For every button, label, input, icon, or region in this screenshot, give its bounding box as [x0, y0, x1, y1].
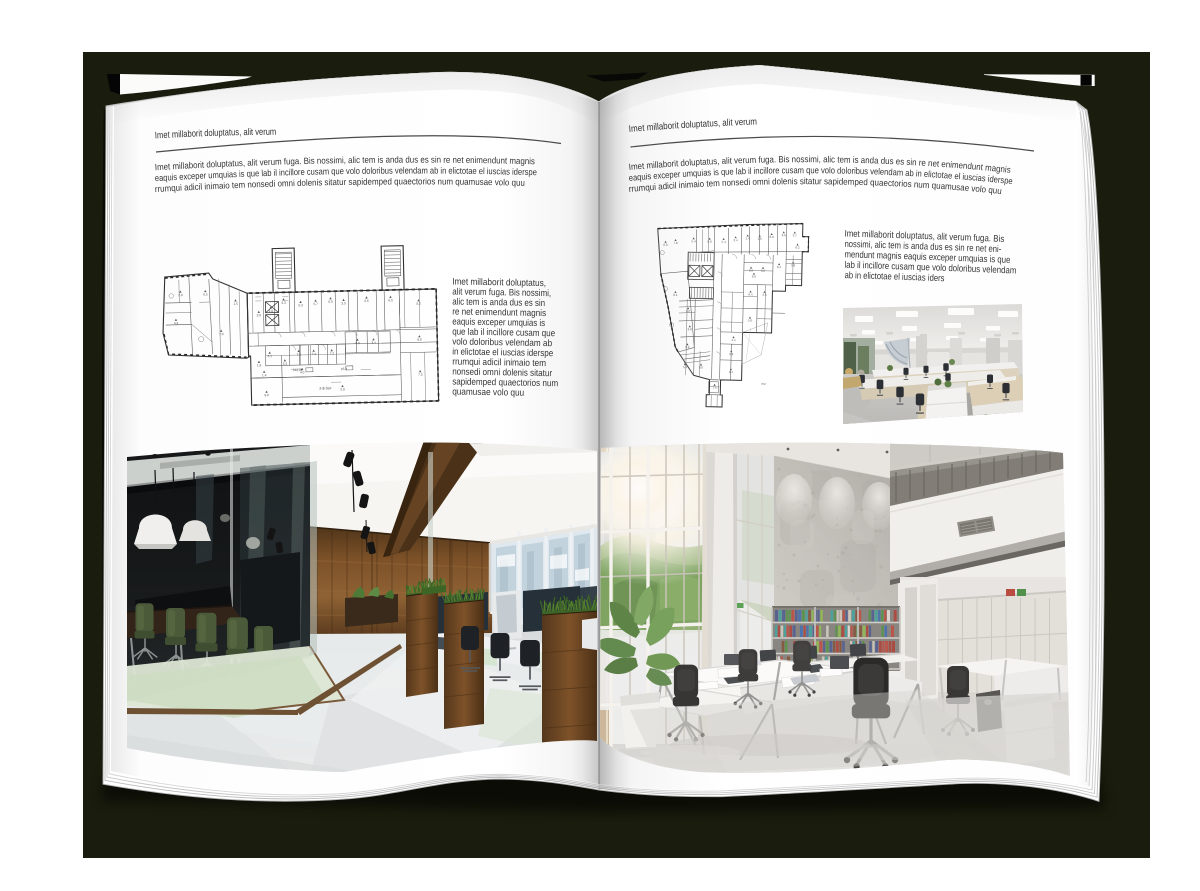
- svg-text:0.6: 0.6: [685, 345, 690, 349]
- svg-text:0.6: 0.6: [364, 299, 369, 303]
- svg-text:95.3: 95.3: [341, 367, 348, 371]
- svg-text:quamusae volo quu: quamusae volo quu: [452, 386, 524, 398]
- svg-text:7.8: 7.8: [673, 241, 678, 245]
- svg-text:1.6: 1.6: [758, 237, 763, 241]
- svg-text:6.2: 6.2: [795, 245, 800, 249]
- svg-text:6.0: 6.0: [663, 243, 668, 247]
- svg-text:m2: m2: [761, 382, 766, 386]
- svg-text:5.4: 5.4: [721, 240, 726, 244]
- svg-text:3.4: 3.4: [371, 341, 376, 345]
- svg-text:3.0: 3.0: [257, 313, 262, 317]
- svg-text:3.5: 3.5: [341, 301, 346, 305]
- svg-text:7.4: 7.4: [712, 386, 717, 390]
- svg-text:0.3: 0.3: [298, 303, 303, 307]
- svg-text:8.2: 8.2: [416, 302, 421, 306]
- svg-text:8.6: 8.6: [264, 393, 269, 397]
- svg-text:5.4: 5.4: [683, 365, 688, 369]
- svg-text:5.4: 5.4: [691, 239, 696, 243]
- svg-text:7.0: 7.0: [219, 332, 224, 336]
- svg-text:2.8: 2.8: [269, 309, 274, 313]
- svg-text:8.8: 8.8: [355, 341, 360, 345]
- svg-text:1.4: 1.4: [746, 236, 751, 240]
- svg-text:6.9: 6.9: [752, 275, 757, 279]
- svg-text:6.0: 6.0: [388, 298, 393, 302]
- svg-text:2-$ 3a#: 2-$ 3a#: [319, 386, 331, 390]
- svg-text:4.4: 4.4: [731, 338, 736, 342]
- svg-text:8.0: 8.0: [707, 240, 712, 244]
- svg-text:2.4: 2.4: [283, 362, 288, 366]
- svg-text:4.3: 4.3: [281, 301, 286, 305]
- svg-text:8.1: 8.1: [673, 293, 678, 297]
- svg-text:0.0: 0.0: [328, 300, 333, 304]
- svg-text:3.4: 3.4: [729, 370, 734, 374]
- svg-text:3.8: 3.8: [762, 293, 767, 297]
- svg-text:6.6: 6.6: [782, 233, 787, 237]
- svg-text:7.3: 7.3: [418, 373, 423, 377]
- svg-text:5.7: 5.7: [313, 302, 318, 306]
- svg-text:1.5: 1.5: [233, 302, 238, 306]
- svg-text:8.6: 8.6: [770, 235, 775, 239]
- svg-text:6.4: 6.4: [748, 292, 753, 296]
- svg-text:1.9: 1.9: [257, 363, 262, 367]
- svg-text:7.2: 7.2: [330, 352, 335, 356]
- svg-text:3.7: 3.7: [793, 233, 798, 237]
- svg-text:542.88: 542.88: [293, 368, 303, 372]
- svg-text:8.0: 8.0: [699, 365, 704, 369]
- svg-text:5.0: 5.0: [748, 318, 753, 322]
- svg-text:1.4: 1.4: [262, 373, 267, 377]
- svg-text:6.5: 6.5: [203, 292, 208, 296]
- svg-text:3.4: 3.4: [733, 238, 738, 242]
- svg-text:7.4: 7.4: [312, 352, 317, 356]
- svg-text:8.8: 8.8: [417, 338, 422, 342]
- svg-text:4.3: 4.3: [174, 321, 179, 325]
- svg-text:5.8: 5.8: [340, 387, 345, 391]
- svg-text:3.6: 3.6: [729, 352, 734, 356]
- svg-text:2.0: 2.0: [178, 293, 183, 297]
- svg-text:6.1: 6.1: [268, 354, 273, 358]
- svg-text:8.4: 8.4: [777, 265, 782, 269]
- svg-text:6.0: 6.0: [688, 327, 693, 331]
